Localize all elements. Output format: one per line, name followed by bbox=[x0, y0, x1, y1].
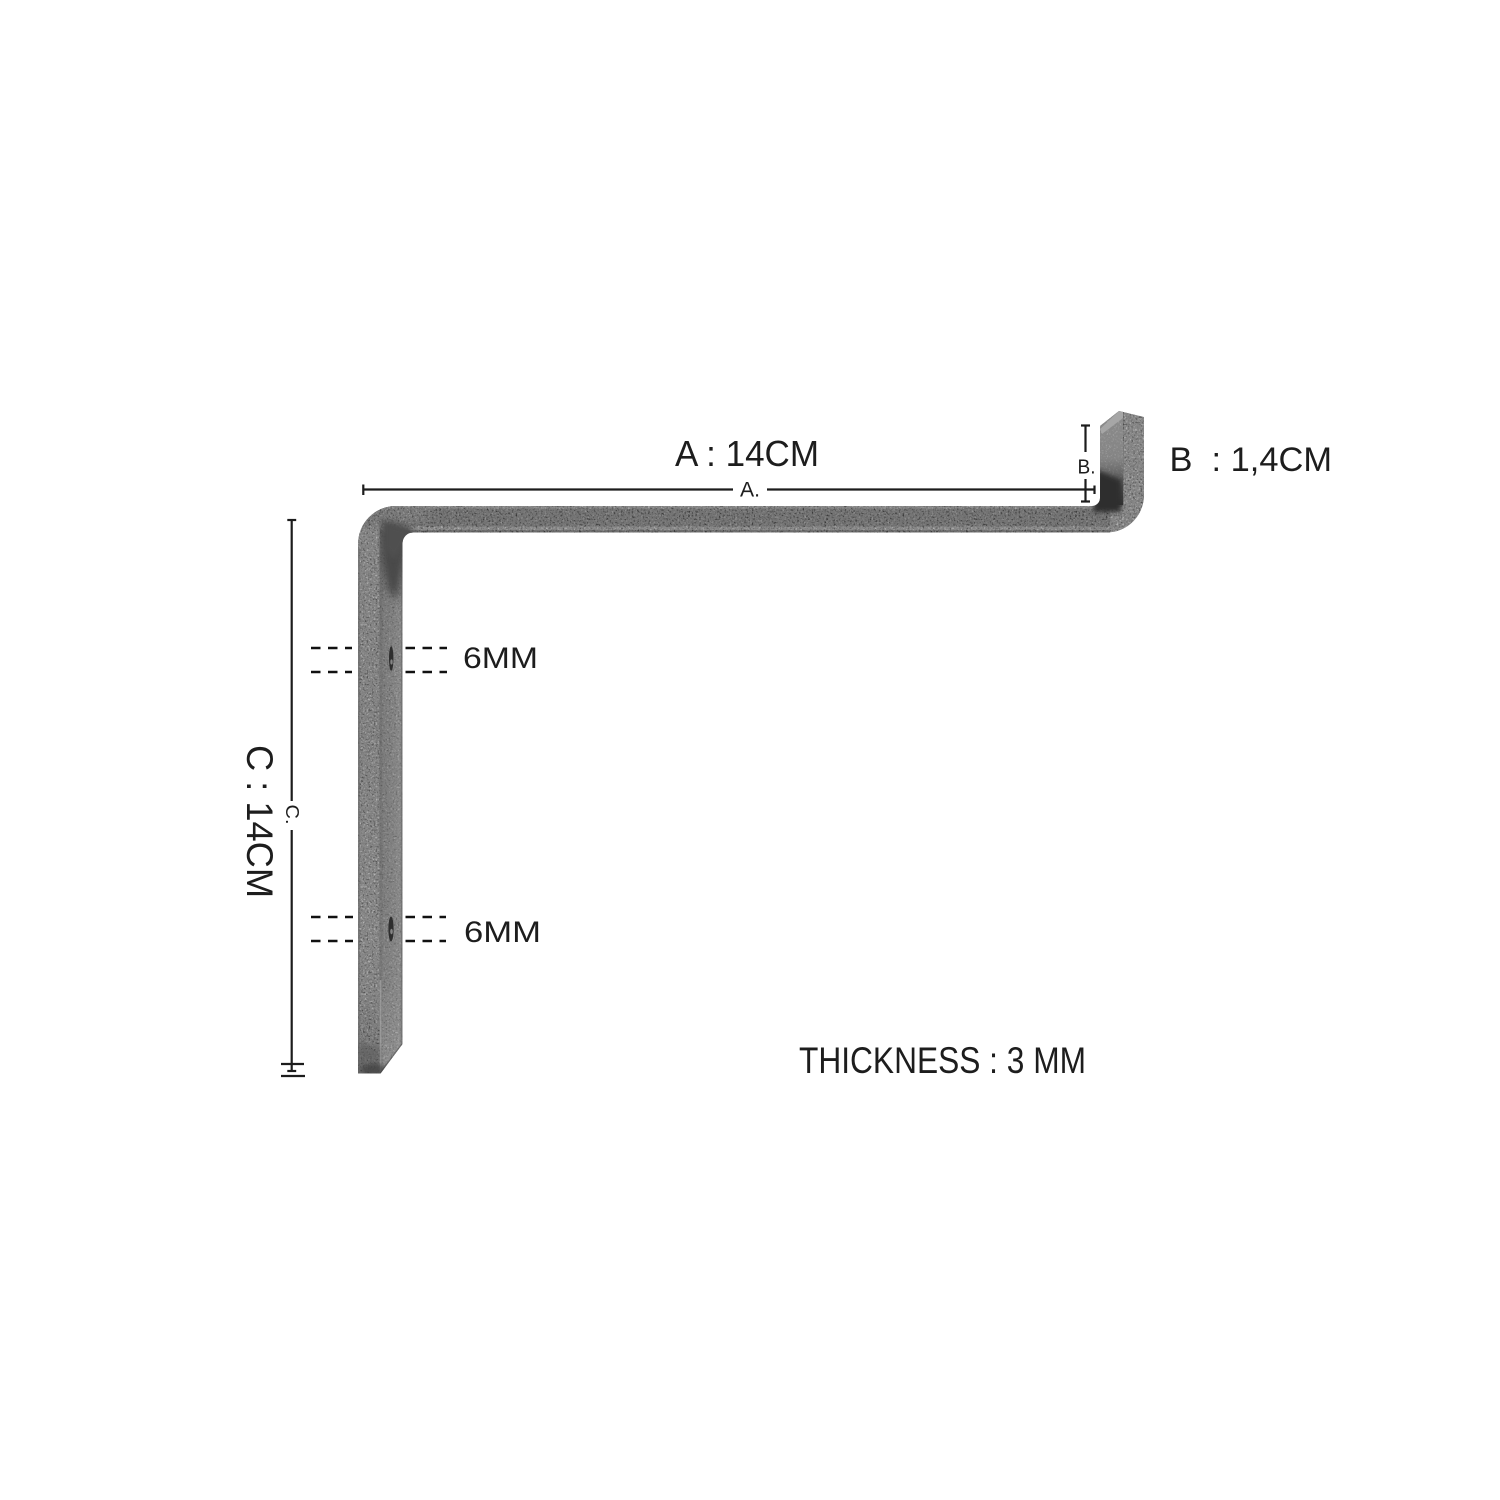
svg-text:B : 1,4CM: B : 1,4CM bbox=[1170, 441, 1333, 479]
svg-text:6MM: 6MM bbox=[464, 916, 541, 949]
svg-text:C.: C. bbox=[282, 805, 302, 825]
svg-text:6MM: 6MM bbox=[463, 642, 538, 675]
svg-text:THICKNESS : 3 MM: THICKNESS : 3 MM bbox=[799, 1040, 1086, 1081]
svg-text:B.: B. bbox=[1078, 457, 1096, 479]
svg-text:A : 14CM: A : 14CM bbox=[675, 433, 819, 474]
svg-text:A.: A. bbox=[740, 479, 760, 502]
svg-text:C : 14CM: C : 14CM bbox=[239, 745, 280, 898]
